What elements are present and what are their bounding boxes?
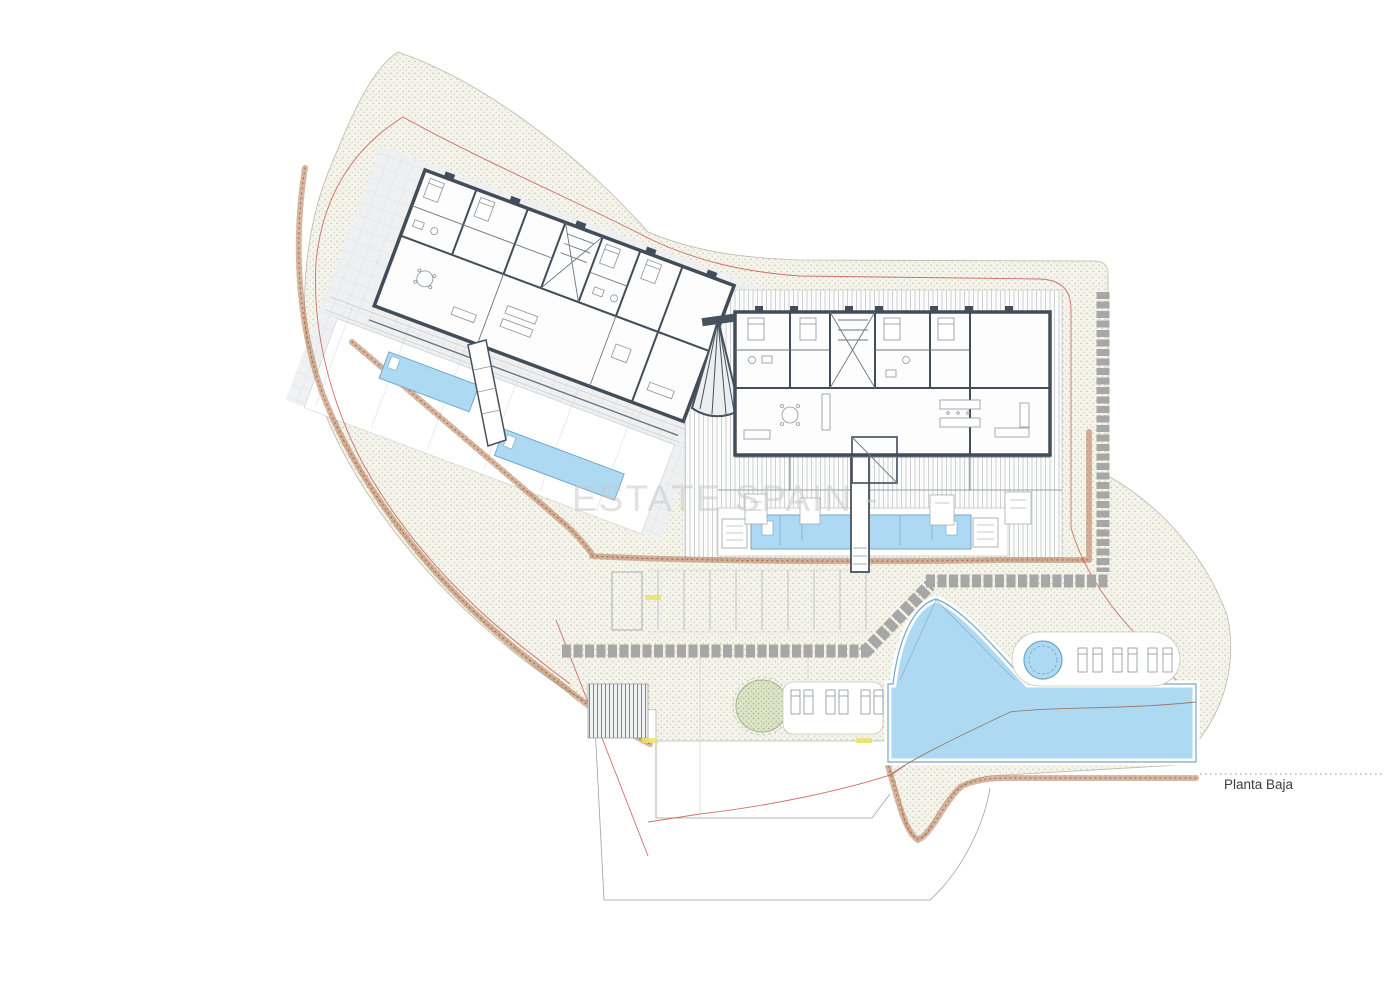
site-plan-drawing: ESTATE SPAIN - Planta Baja: [0, 0, 1400, 990]
watermark: ESTATE SPAIN -: [572, 478, 880, 519]
spa-pool: [1024, 641, 1062, 679]
plan-title-label: Planta Baja: [1224, 777, 1294, 792]
exterior-staircase: [588, 684, 648, 738]
terrace-step-outline: [656, 741, 890, 818]
tree: [736, 680, 788, 732]
floor-plan-page: ESTATE SPAIN - Planta Baja: [0, 0, 1400, 990]
